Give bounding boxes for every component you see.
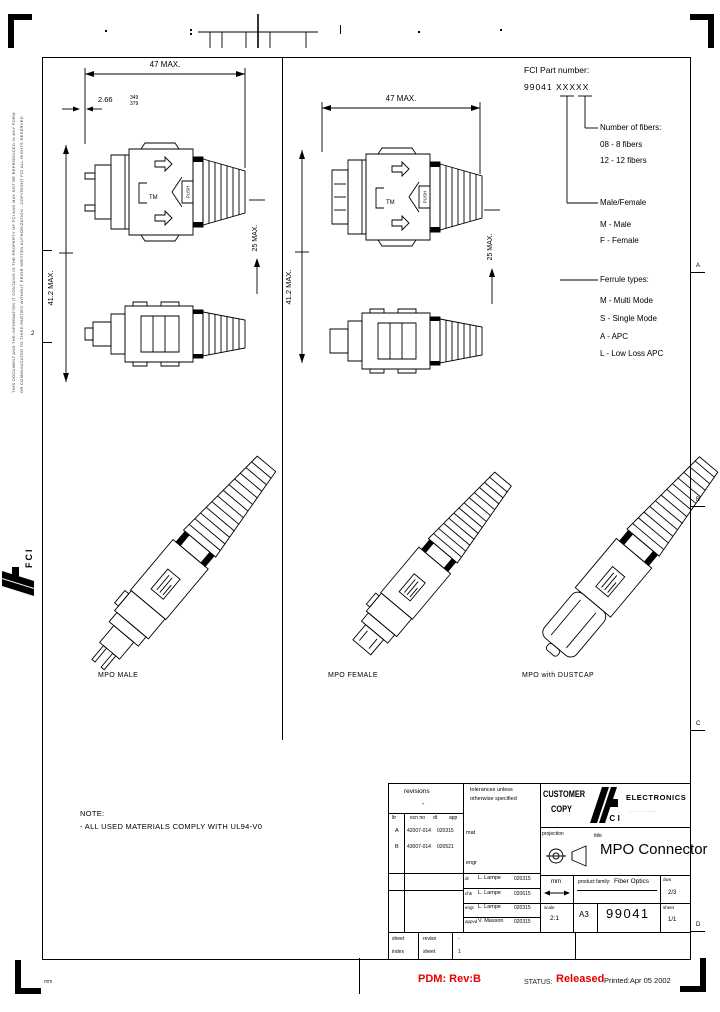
- brand-subtext: · · · · · · · · · · · ·: [628, 810, 656, 814]
- dwn-label: dwn: [663, 878, 671, 883]
- signoff-date: 020315: [514, 877, 531, 882]
- left-zone-number: 2: [31, 331, 34, 337]
- customer-copy-line2: COPY: [551, 805, 572, 814]
- rev-row-dt: 020521: [437, 845, 454, 850]
- drawing-number: 99041: [606, 907, 650, 920]
- dim-overall-left: [85, 68, 245, 168]
- revisions-header: revisions: [404, 789, 430, 796]
- units-arrow-icon: [544, 889, 570, 897]
- dim-front-label: 2.66: [98, 95, 113, 104]
- engr-label: engr: [466, 861, 477, 867]
- top-margin-dot-3: [500, 29, 502, 31]
- rev-col-dt: dt: [433, 816, 437, 821]
- signoff-date: 020315: [514, 920, 531, 925]
- title-label: title: [594, 834, 602, 839]
- signoff-date: 020315: [514, 906, 531, 911]
- status-value: Released: [556, 974, 604, 985]
- dim-length-label: 41.2 MAX.: [46, 270, 55, 305]
- bottom-center-tick: [359, 958, 360, 994]
- ferrule-item: S - Single Mode: [600, 315, 657, 323]
- note-title: NOTE:: [80, 810, 104, 818]
- zone-letter-c: C: [696, 721, 700, 727]
- fci-logo-text: FCI: [24, 548, 34, 569]
- top-margin-dot: [105, 30, 107, 32]
- zone-letter-d: D: [696, 922, 700, 928]
- signoff-role: appvd: [465, 920, 477, 925]
- boot-ribs: [209, 161, 239, 223]
- part-number-title: FCI Part number:: [524, 66, 589, 75]
- dim-height-label: 25 MAX.: [487, 234, 494, 261]
- dim-length-label: 41.2 MAX.: [284, 269, 293, 304]
- dim-length-right: [295, 150, 309, 363]
- status-label: STATUS:: [524, 979, 553, 986]
- dim-overall-label: 47 MAX.: [386, 94, 417, 103]
- gender-title: Male/Female: [600, 199, 646, 207]
- pdm-revision: PDM: Rev:B: [418, 974, 481, 985]
- margin-fine-print-2: OR COMMUNICATED TO THIRD PARTIES WITHOUT…: [19, 116, 24, 393]
- boot-ribs: [209, 313, 239, 355]
- dim-front-tol-bottom: 379: [130, 101, 139, 107]
- tm-mark: TM: [386, 200, 395, 206]
- rev-row-ltr: B: [395, 845, 399, 851]
- fci-logo-text: FCI: [602, 814, 622, 823]
- tolerances-line1: tolerances unless: [470, 788, 513, 794]
- signoff-name: L. Lampe: [478, 891, 501, 897]
- margin-fine-print-1: THIS DOCUMENT AND THE INFORMATION IT CON…: [11, 112, 16, 393]
- strip-r1-c2: revisn: [423, 937, 436, 942]
- brand-division: ELECTRONICS: [626, 794, 686, 802]
- ferrule-item: A - APC: [600, 333, 628, 341]
- signoff-name: L. Lampe: [478, 905, 501, 911]
- dim-height-label: 25 MAX.: [252, 225, 259, 252]
- page-number: 2/3: [668, 890, 676, 896]
- drawing-title: MPO Connector: [600, 842, 708, 857]
- product-family-label: product family:: [578, 880, 611, 885]
- boot-ribs: [446, 166, 476, 228]
- dim-front-arrows: [62, 107, 102, 112]
- mat-label: mat: [466, 831, 475, 837]
- gender-item: F - Female: [600, 237, 639, 245]
- strip-r2-c3: 1: [458, 950, 461, 955]
- signoff-date: 020615: [514, 892, 531, 897]
- customer-copy-line1: CUSTOMER: [543, 790, 585, 799]
- boot-ribs: [446, 320, 476, 362]
- tm-mark: TM: [149, 195, 158, 201]
- push-label: PUSH: [186, 186, 191, 199]
- rev-row-ecn: 43007-014: [407, 845, 431, 850]
- view-label-dustcap: MPO with DUSTCAP: [522, 672, 594, 679]
- boot-ribs: [633, 456, 720, 549]
- rev-row-dt: 020315: [437, 829, 454, 834]
- strip-r2-c1: index: [392, 950, 404, 955]
- connector-top-view-male: TM PUSH: [85, 143, 245, 241]
- dim-length-left: [59, 145, 73, 382]
- fci-logo-margin: FCI: [0, 534, 36, 606]
- rev-col-app: app: [449, 816, 457, 821]
- top-margin-tick: [340, 25, 341, 34]
- dim-overall-label: 47 MAX.: [150, 60, 181, 69]
- printed-date: Printed:Apr 05 2002: [604, 977, 671, 985]
- rev-col-ltr: ltr: [392, 816, 396, 821]
- fibers-title: Number of fibers:: [600, 124, 661, 132]
- sheet-value: 1/1: [668, 917, 676, 923]
- signoff-role: engr: [465, 906, 474, 911]
- top-margin-dot-2: [418, 31, 420, 33]
- connector-top-view-female: TM PUSH: [332, 148, 482, 246]
- pictorial-mpo-male: [62, 418, 252, 674]
- view-label-male: MPO MALE: [98, 672, 138, 679]
- scale-value: 2:1: [550, 916, 559, 923]
- dim-overall-right: [322, 102, 480, 174]
- fibers-item: 12 - 12 fibers: [600, 157, 647, 165]
- signoff-role: chk: [465, 892, 472, 897]
- bottom-units-note: mm: [44, 980, 52, 985]
- drawing-sheet: THIS DOCUMENT AND THE INFORMATION IT CON…: [0, 0, 720, 1012]
- signoff-name: V. Masson: [478, 919, 503, 925]
- pictorial-mpo-dustcap: [512, 422, 702, 672]
- view-label-female: MPO FEMALE: [328, 672, 378, 679]
- sheet-size: A3: [579, 911, 589, 919]
- third-angle-projection-icon: [546, 844, 588, 868]
- units-label: mm: [551, 879, 561, 885]
- gender-item: M - Male: [600, 221, 631, 229]
- signoff-name: L. Lampe: [478, 876, 501, 882]
- rev-row-ltr: A: [395, 829, 399, 835]
- push-label: PUSH: [423, 191, 428, 204]
- part-number-value: 99041 XXXXX: [524, 83, 589, 92]
- projection-label: projection: [542, 832, 564, 837]
- fibers-item: 08 - 8 fibers: [600, 141, 642, 149]
- ortho-view-group-right: 47 MAX. 41.2 MAX. 25 MAX. TM: [280, 52, 520, 397]
- revisions-dash: -: [422, 801, 424, 808]
- product-family-value: Fiber Optics: [614, 879, 649, 886]
- ortho-view-group-left: 47 MAX. 2.66 349 379 41.2 MAX. 25 MAX.: [40, 48, 290, 393]
- connector-side-view-male: [85, 302, 245, 366]
- rev-col-ecn: ecn no: [410, 816, 425, 821]
- ferrule-item: L - Low Loss APC: [600, 350, 663, 358]
- fci-logo-titleblock: FCI: [586, 785, 622, 825]
- tolerances-line2: otherwise specified: [470, 797, 517, 803]
- strip-r1-c1: sheet: [392, 937, 404, 942]
- connector-side-view-female: [330, 309, 482, 373]
- rev-row-ecn: 42007-014: [407, 829, 431, 834]
- pictorial-mpo-female: [322, 430, 492, 670]
- sheet-label: sheet: [663, 906, 674, 911]
- ferrule-item: M - Multi Mode: [600, 297, 653, 305]
- strip-r2-c2: sheet: [423, 950, 435, 955]
- note-body: - ALL USED MATERIALS COMPLY WITH UL94-V0: [80, 823, 262, 831]
- signoff-role: dr: [465, 877, 469, 882]
- ferrule-title: Ferrule types:: [600, 276, 649, 284]
- scale-label: scale: [544, 906, 555, 911]
- strip-r1-c3: -: [458, 937, 460, 942]
